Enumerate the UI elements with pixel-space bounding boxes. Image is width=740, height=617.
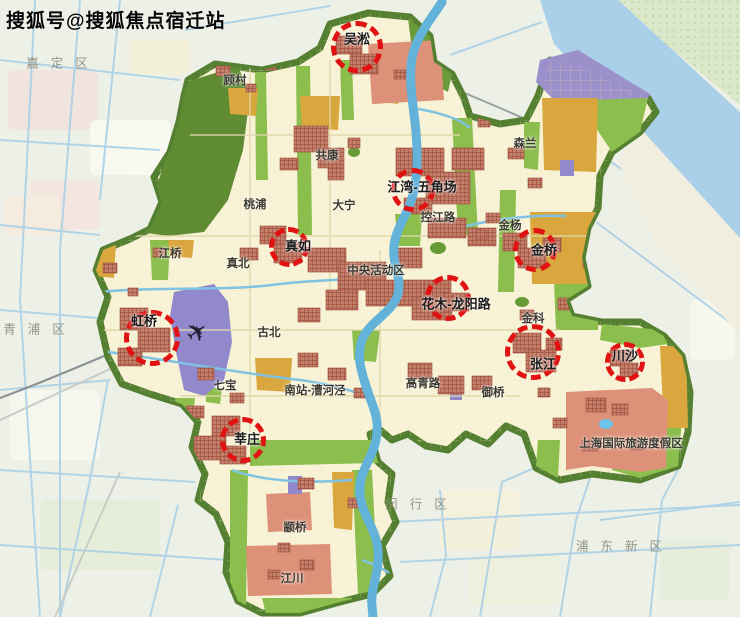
city-center-label: 川沙: [612, 346, 638, 365]
place-label: 共康: [316, 147, 339, 163]
airplane-icon: ✈: [181, 315, 214, 349]
place-label: 南站-漕河泾: [284, 382, 345, 398]
place-label: 金科: [522, 310, 545, 326]
city-center-label: 张江: [530, 354, 556, 373]
city-center-label: 莘庄: [234, 429, 260, 448]
city-center-label: 真如: [285, 236, 311, 255]
place-label: 顾村: [224, 72, 247, 88]
map-screenshot: 吴淞江湾-五角场真如金桥花木-龙阳路虹桥张江川沙莘庄顾村共康桃浦大宁控江路金杨森…: [0, 0, 740, 617]
city-center-label: 虹桥: [131, 311, 157, 330]
place-label: 颛桥: [284, 519, 307, 535]
city-center-label: 金桥: [531, 240, 557, 259]
place-label: 控江路: [421, 209, 456, 225]
city-center-label: 江湾-五角场: [387, 177, 456, 196]
place-label: 森兰: [514, 135, 537, 151]
place-label: 真北: [227, 255, 250, 271]
place-label: 高青路: [406, 375, 441, 391]
place-label: 七宝: [214, 377, 237, 393]
place-label: 江桥: [159, 245, 182, 261]
city-center-label: 吴淞: [344, 29, 370, 48]
city-center-label: 花木-龙阳路: [421, 294, 490, 313]
district-label: 嘉定区: [26, 53, 100, 72]
place-label: 上海国际旅游度假区: [579, 435, 683, 451]
place-label: 御桥: [482, 384, 505, 400]
place-label: 金杨: [499, 217, 522, 233]
place-label: 大宁: [333, 197, 356, 213]
place-label: 中央活动区: [347, 262, 405, 278]
watermark: 搜狐号@搜狐焦点宿迁站: [6, 6, 226, 33]
district-label: 浦东新区: [576, 536, 674, 555]
marker-layer: 吴淞江湾-五角场真如金桥花木-龙阳路虹桥张江川沙莘庄顾村共康桃浦大宁控江路金杨森…: [0, 0, 740, 617]
place-label: 古北: [258, 324, 281, 340]
district-label: 闵行区: [385, 494, 459, 513]
place-label: 桃浦: [244, 196, 267, 212]
district-label: 青浦区: [3, 319, 77, 338]
place-label: 江川: [281, 570, 304, 586]
